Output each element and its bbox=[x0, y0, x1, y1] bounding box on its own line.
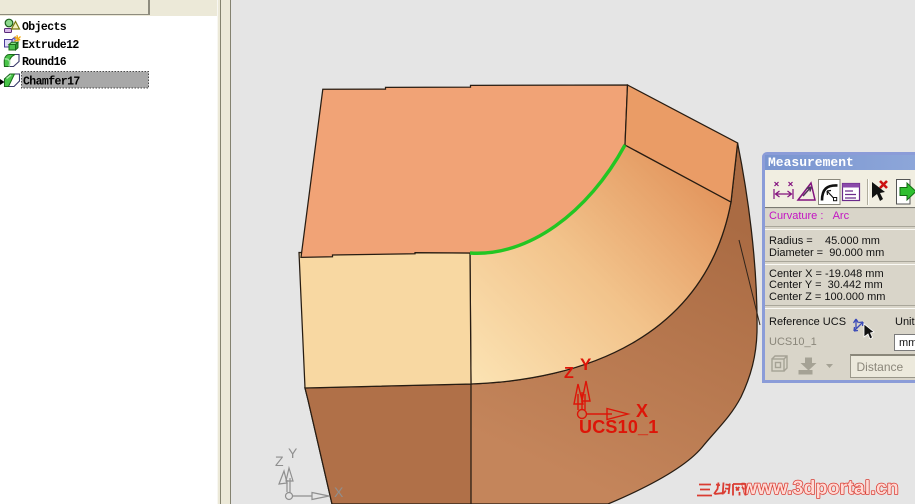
svg-text:Extrude12: Extrude12 bbox=[22, 39, 79, 52]
svg-text:Chamfer17: Chamfer17 bbox=[23, 76, 80, 89]
svg-text:www.3dportal.cn: www.3dportal.cn bbox=[741, 477, 899, 499]
svg-text:Y: Y bbox=[580, 355, 592, 374]
svg-text:Objects: Objects bbox=[22, 21, 67, 34]
svg-text:Y: Y bbox=[288, 445, 298, 461]
svg-text:Z: Z bbox=[275, 453, 284, 469]
svg-text:UCS10_1: UCS10_1 bbox=[579, 417, 658, 437]
svg-text:Z: Z bbox=[564, 365, 574, 382]
svg-text:Round16: Round16 bbox=[22, 56, 67, 69]
svg-text:X: X bbox=[334, 484, 344, 500]
